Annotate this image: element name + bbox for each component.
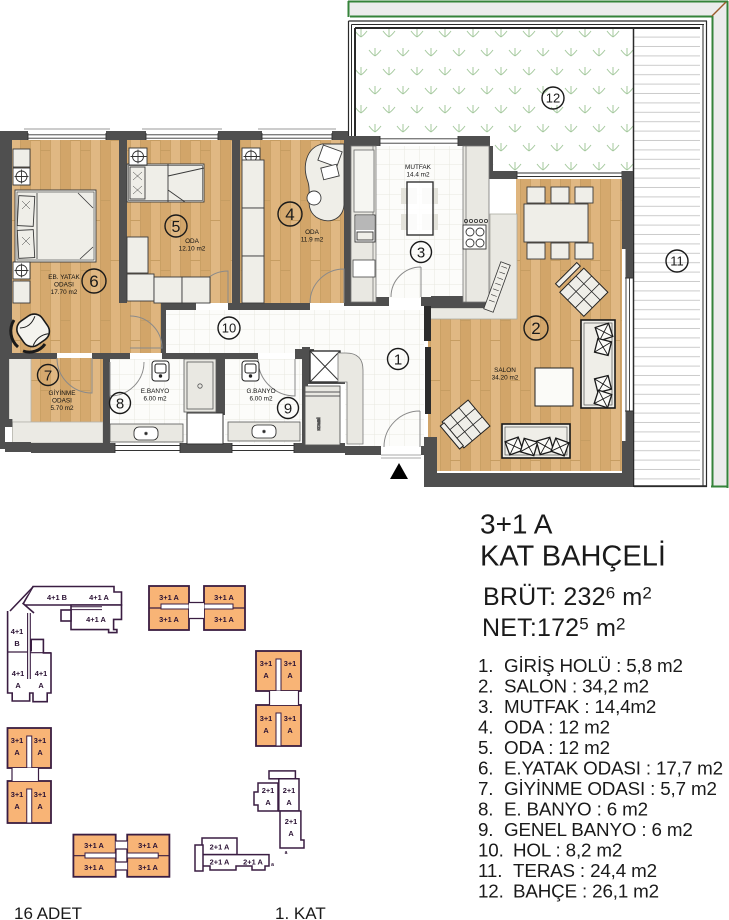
svg-text:4: 4 — [285, 205, 294, 224]
svg-text:KAT BAHÇELİ: KAT BAHÇELİ — [480, 540, 666, 573]
svg-text:A: A — [287, 671, 293, 680]
svg-text:ODA : 12 m2: ODA : 12 m2 — [504, 717, 610, 738]
svg-text:2+1: 2+1 — [285, 817, 298, 826]
svg-text:3+1 A: 3+1 A — [84, 863, 104, 872]
svg-text:2: 2 — [531, 319, 540, 338]
svg-text:3+1: 3+1 — [11, 790, 24, 799]
svg-text:3+1: 3+1 — [260, 714, 273, 723]
svg-text:2+1 A: 2+1 A — [210, 843, 230, 852]
svg-text:A: A — [14, 748, 20, 757]
svg-text:2+1 A: 2+1 A — [210, 858, 230, 867]
svg-text:A: A — [14, 802, 20, 811]
svg-text:9: 9 — [284, 400, 292, 417]
svg-text:E.YATAK ODASI : 17,7 m2: E.YATAK ODASI : 17,7 m2 — [504, 758, 723, 779]
svg-text:6.: 6. — [478, 758, 493, 779]
svg-text:3.: 3. — [478, 696, 493, 717]
svg-text:BRÜT: 2326 m2: BRÜT: 2326 m2 — [483, 583, 652, 611]
svg-text:4+1: 4+1 — [12, 669, 25, 678]
svg-text:3+1 A: 3+1 A — [159, 593, 179, 602]
svg-text:3+1: 3+1 — [34, 736, 47, 745]
svg-text:1: 1 — [394, 351, 402, 368]
svg-text:E.BANYO: E.BANYO — [141, 388, 169, 395]
svg-text:3+1 A: 3+1 A — [138, 863, 158, 872]
svg-text:3+1 A: 3+1 A — [214, 615, 234, 624]
svg-text:8.: 8. — [478, 799, 493, 820]
svg-text:MUTFAK: MUTFAK — [405, 164, 432, 171]
svg-text:8: 8 — [116, 395, 124, 412]
svg-text:MUTFAK : 14,4m2: MUTFAK : 14,4m2 — [504, 696, 656, 717]
svg-text:4+1: 4+1 — [11, 627, 24, 636]
svg-text:2+1: 2+1 — [262, 786, 275, 795]
svg-text:4+1 A: 4+1 A — [86, 615, 106, 624]
svg-text:12.10 m2: 12.10 m2 — [179, 246, 206, 253]
svg-text:GİYİNME ODASI : 5,7 m2: GİYİNME ODASI : 5,7 m2 — [504, 778, 717, 799]
svg-text:1. KAT: 1. KAT — [275, 904, 326, 920]
svg-text:ODA : 12 m2: ODA : 12 m2 — [504, 737, 610, 758]
svg-text:A: A — [263, 671, 269, 680]
svg-text:14.4 m2: 14.4 m2 — [406, 172, 430, 179]
svg-text:A: A — [38, 681, 44, 690]
svg-text:3+1 A: 3+1 A — [159, 615, 179, 624]
svg-text:a: a — [285, 850, 288, 856]
svg-text:5: 5 — [172, 219, 181, 236]
svg-text:12.: 12. — [478, 881, 504, 902]
svg-text:10.: 10. — [478, 840, 504, 861]
svg-text:A: A — [265, 798, 271, 807]
svg-text:3+1: 3+1 — [260, 659, 273, 668]
svg-text:16 ADET: 16 ADET — [14, 904, 82, 920]
svg-text:4+1 A: 4+1 A — [89, 593, 109, 602]
svg-text:ODA: ODA — [185, 238, 200, 245]
svg-text:11: 11 — [670, 254, 684, 269]
svg-text:A: A — [15, 681, 21, 690]
svg-text:B: B — [14, 639, 19, 648]
svg-text:A: A — [37, 802, 43, 811]
svg-text:10: 10 — [222, 321, 236, 336]
svg-text:6.00 m2: 6.00 m2 — [249, 396, 273, 403]
svg-text:4+1: 4+1 — [35, 669, 48, 678]
svg-text:GİYİNME: GİYİNME — [49, 388, 76, 397]
svg-text:SALON: SALON — [494, 367, 516, 374]
svg-text:17.70 m2: 17.70 m2 — [51, 289, 78, 296]
svg-text:7.: 7. — [478, 778, 493, 799]
svg-text:HOL : 8,2 m2: HOL : 8,2 m2 — [513, 840, 622, 861]
svg-text:2+1 A: 2+1 A — [243, 858, 263, 867]
svg-text:3+1 A: 3+1 A — [84, 841, 104, 850]
svg-text:4+1 B: 4+1 B — [47, 593, 67, 602]
svg-text:ODASI: ODASI — [54, 282, 74, 289]
svg-text:ODASI: ODASI — [52, 398, 72, 405]
svg-text:A: A — [288, 829, 294, 838]
svg-text:G.BANYO: G.BANYO — [246, 388, 275, 395]
svg-text:A: A — [286, 798, 292, 807]
svg-text:3+1: 3+1 — [284, 659, 297, 668]
svg-text:12: 12 — [546, 91, 560, 106]
svg-text:1.: 1. — [478, 655, 493, 676]
svg-text:GİRİŞ HOLÜ : 5,8 m2: GİRİŞ HOLÜ : 5,8 m2 — [504, 655, 683, 676]
svg-text:TERAS : 24,4 m2: TERAS : 24,4 m2 — [513, 860, 657, 881]
svg-text:3+1 A: 3+1 A — [138, 841, 158, 850]
svg-text:3+1: 3+1 — [284, 714, 297, 723]
svg-text:NET:1725 m2: NET:1725 m2 — [482, 614, 626, 642]
svg-text:3+1 A: 3+1 A — [214, 593, 234, 602]
svg-text:9.: 9. — [478, 819, 493, 840]
svg-text:11.: 11. — [478, 860, 502, 881]
svg-text:6: 6 — [89, 272, 98, 291]
svg-text:5.70 m2: 5.70 m2 — [50, 405, 74, 412]
svg-text:7: 7 — [44, 367, 52, 384]
svg-text:BAHÇE : 26,1 m2: BAHÇE : 26,1 m2 — [513, 881, 659, 902]
svg-text:3+1 A: 3+1 A — [480, 509, 553, 540]
svg-text:2.: 2. — [478, 676, 493, 697]
svg-text:A: A — [263, 726, 269, 735]
svg-text:2+1: 2+1 — [283, 786, 296, 795]
svg-text:A: A — [37, 748, 43, 757]
svg-text:GENEL BANYO : 6 m2: GENEL BANYO : 6 m2 — [504, 819, 693, 840]
svg-text:EB. YATAK: EB. YATAK — [48, 274, 80, 281]
svg-text:11.9 m2: 11.9 m2 — [301, 237, 324, 244]
svg-text:ODA: ODA — [305, 229, 320, 236]
svg-text:3+1: 3+1 — [34, 790, 47, 799]
svg-text:6.00 m2: 6.00 m2 — [143, 396, 167, 403]
svg-text:E. BANYO : 6 m2: E. BANYO : 6 m2 — [504, 799, 648, 820]
svg-text:A: A — [287, 726, 293, 735]
svg-text:34.20 m2: 34.20 m2 — [492, 375, 519, 382]
svg-text:SALON : 34,2 m2: SALON : 34,2 m2 — [504, 676, 649, 697]
svg-text:5.: 5. — [478, 737, 493, 758]
svg-text:4.: 4. — [478, 717, 493, 738]
svg-text:KOMBİ: KOMBİ — [316, 418, 321, 431]
svg-text:3+1: 3+1 — [11, 736, 24, 745]
svg-text:a: a — [271, 862, 274, 868]
svg-text:3: 3 — [417, 244, 425, 261]
